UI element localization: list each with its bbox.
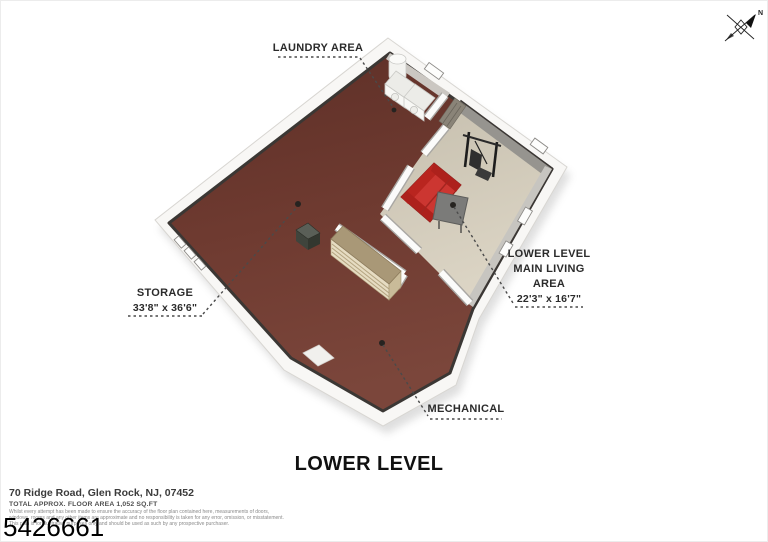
mechanical-label: MECHANICAL [428, 403, 505, 415]
living-dims: 22'3" x 16'7" [517, 293, 581, 305]
storage-label: STORAGE [137, 287, 193, 299]
leader-dot [295, 201, 301, 207]
north-label: N [758, 10, 763, 17]
living-label-1: LOWER LEVEL [508, 248, 591, 260]
storage-dims: 33'8" x 36'6" [133, 302, 197, 314]
leader-dot [450, 202, 456, 208]
listing-id: 5426661 [3, 513, 104, 541]
floor-area-text: TOTAL APPROX. FLOOR AREA 1,052 SQ.FT [9, 500, 429, 509]
laundry-label: LAUNDRY AREA [273, 42, 364, 54]
living-label-2: MAIN LIVING [513, 263, 584, 275]
plan-title: LOWER LEVEL [269, 453, 469, 476]
compass-icon: N [725, 10, 763, 41]
leader-dot [392, 108, 397, 113]
floor-plan-page: LAUNDRY AREA STORAGE 33'8" x 36'6" LOWER… [0, 0, 768, 542]
living-label-3: AREA [533, 278, 565, 290]
leader-dot [379, 340, 385, 346]
property-address: 70 Ridge Road, Glen Rock, NJ, 07452 [9, 487, 429, 500]
